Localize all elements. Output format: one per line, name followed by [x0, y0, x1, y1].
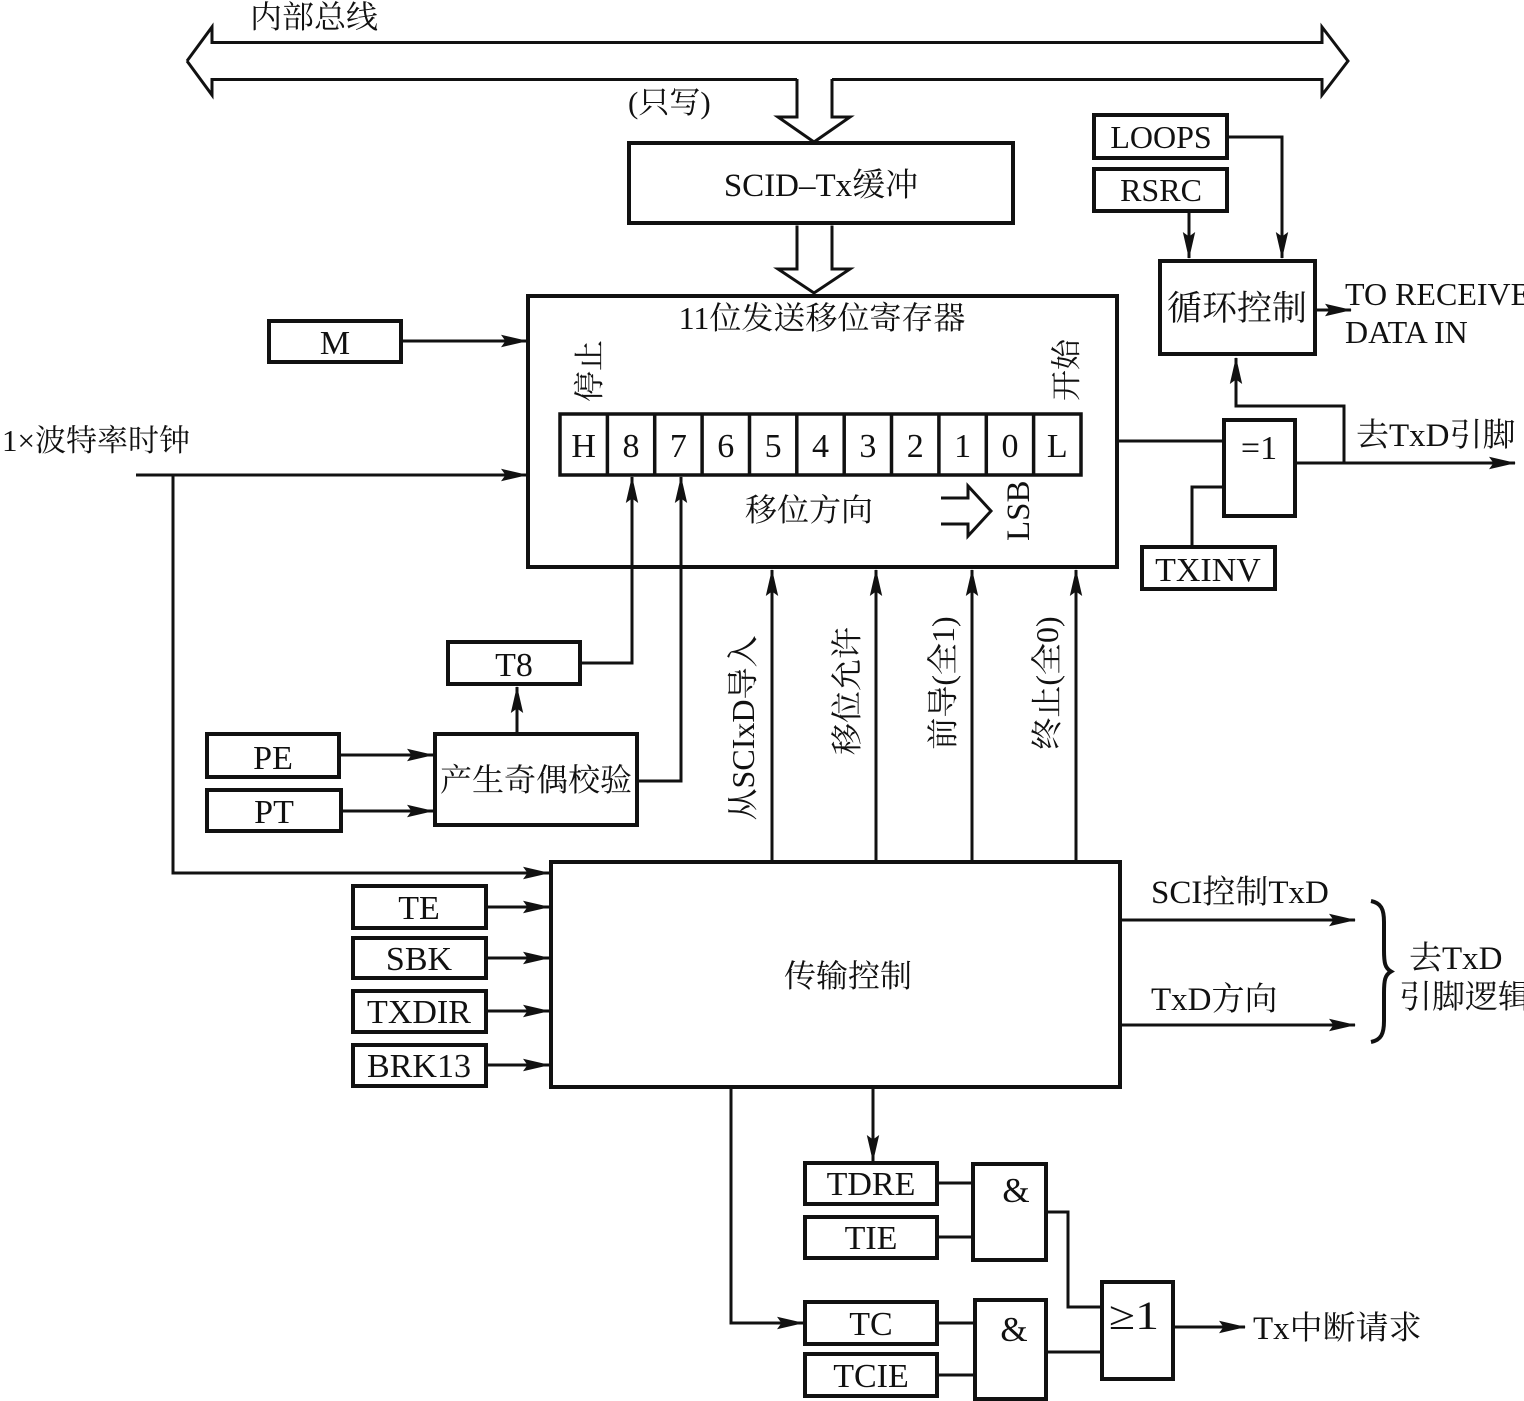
svg-text:&: &	[1002, 1171, 1029, 1210]
svg-text:3: 3	[859, 428, 876, 465]
svg-text:TXINV: TXINV	[1155, 552, 1261, 589]
svg-text:RSRC: RSRC	[1120, 172, 1202, 208]
svg-text:1×波特率时钟: 1×波特率时钟	[2, 415, 190, 460]
svg-text:SCI控制TxD: SCI控制TxD	[1151, 866, 1329, 913]
svg-text:Tx中断请求: Tx中断请求	[1253, 1302, 1422, 1349]
svg-text:TCIE: TCIE	[833, 1358, 909, 1395]
svg-text:TDRE: TDRE	[827, 1166, 916, 1203]
svg-text:前导(全1): 前导(全1)	[918, 616, 964, 749]
svg-text:TXDIR: TXDIR	[367, 994, 471, 1031]
svg-text:PT: PT	[254, 794, 294, 831]
svg-text:TE: TE	[398, 890, 440, 927]
svg-text:TxD方向: TxD方向	[1151, 973, 1278, 1020]
svg-text:去TxD引脚: 去TxD引脚	[1356, 409, 1516, 456]
svg-text:引脚逻辑: 引脚逻辑	[1399, 971, 1524, 1018]
svg-text:从SCIxD导入: 从SCIxD导入	[718, 636, 764, 821]
svg-text:7: 7	[670, 428, 687, 465]
svg-text:2: 2	[907, 428, 924, 465]
svg-text:1: 1	[954, 428, 971, 465]
svg-text:PE: PE	[253, 740, 293, 777]
svg-text:SBK: SBK	[386, 941, 453, 978]
svg-text:≥1: ≥1	[1109, 1293, 1159, 1338]
svg-text:LSB: LSB	[1001, 480, 1037, 541]
svg-text:BRK13: BRK13	[367, 1048, 471, 1085]
svg-text:H: H	[571, 428, 596, 465]
svg-text:开始: 开始	[1041, 339, 1086, 401]
svg-text:6: 6	[717, 428, 734, 465]
svg-text:0: 0	[1002, 428, 1019, 465]
svg-text:SCID–Tx缓冲: SCID–Tx缓冲	[724, 159, 918, 206]
svg-text:终止(全0): 终止(全0)	[1022, 616, 1068, 749]
svg-text:传输控制: 传输控制	[784, 951, 912, 997]
svg-text:4: 4	[812, 428, 829, 465]
svg-text:LOOPS: LOOPS	[1110, 119, 1211, 155]
svg-text:M: M	[320, 325, 350, 362]
svg-text:DATA IN: DATA IN	[1345, 314, 1468, 350]
svg-text:产生奇偶校验: 产生奇偶校验	[440, 755, 632, 801]
svg-text:&: &	[1000, 1310, 1027, 1349]
svg-text:TO RECEIVE: TO RECEIVE	[1345, 276, 1524, 312]
svg-text:移位方向: 移位方向	[745, 485, 873, 531]
svg-text:11位发送移位寄存器: 11位发送移位寄存器	[679, 293, 966, 339]
svg-text:移位允许: 移位允许	[822, 627, 868, 755]
svg-text:=1: =1	[1241, 430, 1277, 467]
svg-text:TIE: TIE	[845, 1220, 898, 1257]
svg-text:T8: T8	[495, 647, 533, 684]
svg-text:5: 5	[765, 428, 782, 465]
svg-text:8: 8	[623, 428, 640, 465]
svg-text:L: L	[1047, 428, 1068, 465]
svg-text:循环控制: 循环控制	[1167, 281, 1307, 331]
svg-text:内部总线: 内部总线	[250, 0, 378, 38]
svg-text:(只写): (只写)	[628, 77, 711, 122]
svg-text:停止: 停止	[564, 340, 609, 402]
svg-text:TC: TC	[849, 1306, 892, 1343]
